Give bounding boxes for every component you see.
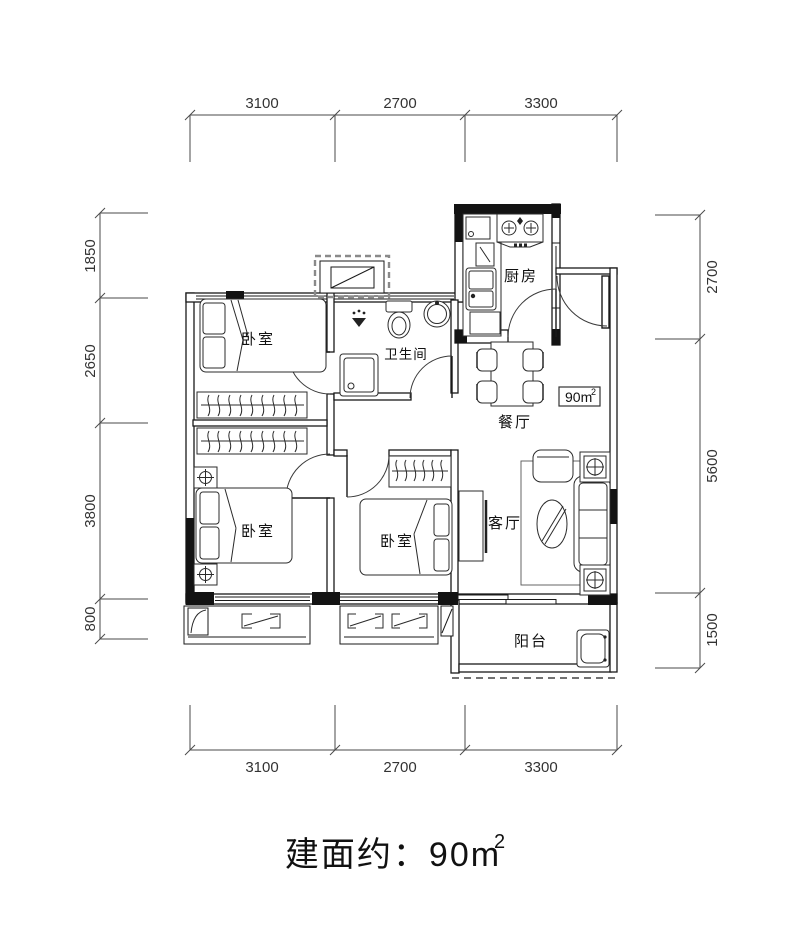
- shower: [340, 310, 378, 396]
- dining-chair: [523, 349, 543, 371]
- door-bedroom-3: [347, 455, 389, 497]
- dimension-chain-right: 2700 5600 1500: [655, 210, 721, 673]
- wall-bedroom3-top: [334, 450, 347, 456]
- room-label-balcony: 阳台: [514, 633, 548, 650]
- area-badge: 90m 2: [559, 387, 600, 406]
- wall-bedroom-divider: [193, 420, 327, 426]
- pillow: [434, 504, 449, 536]
- room-bedroom-2: 卧室: [194, 428, 307, 585]
- door-bathroom: [410, 356, 452, 398]
- shower-head-icon: [352, 318, 366, 327]
- room-living: 客厅: [459, 450, 610, 595]
- ac-platform-top: [315, 256, 389, 297]
- dim-left-4: 800: [82, 606, 99, 631]
- wardrobe: [197, 428, 307, 454]
- wall-balcony-right: [610, 603, 617, 672]
- dim-right-3: 1500: [704, 613, 721, 646]
- kitchen-sink: [466, 268, 496, 310]
- balcony-corner-sash: [441, 606, 453, 636]
- room-kitchen: 厨房: [463, 214, 543, 336]
- nightstand: [194, 467, 217, 488]
- wall-right: [610, 268, 617, 603]
- wall-solid-block: [610, 489, 617, 524]
- dim-top-1: 3100: [245, 95, 278, 112]
- wall-interior-vertical: [327, 394, 334, 455]
- armchair: [533, 450, 573, 482]
- wall-solid-block: [186, 518, 194, 604]
- dim-bottom-1: 3100: [245, 759, 278, 776]
- dining-chair: [477, 381, 497, 403]
- wall-solid-block: [552, 204, 560, 218]
- caption-sup: 2: [494, 831, 505, 853]
- pillow: [203, 337, 225, 368]
- coffee-table: [537, 500, 567, 548]
- floor-plan-drawing: 3100 2700 3300 3100 2700 3300 1850 2650 …: [0, 0, 800, 952]
- door-kitchen: [508, 289, 556, 337]
- dim-right-1: 2700: [704, 260, 721, 293]
- kitchen-cabinet: [470, 312, 500, 334]
- side-table: [580, 452, 610, 482]
- wall-interior-vertical: [327, 498, 334, 602]
- floor-plan-page: 3100 2700 3300 3100 2700 3300 1850 2650 …: [0, 0, 800, 952]
- room-label-bathroom: 卫生间: [384, 347, 428, 362]
- room-bedroom-1: 卧室: [197, 299, 326, 418]
- caption: 建面约：90m 2: [285, 831, 505, 874]
- caption-text: 建面约：90m: [285, 836, 501, 874]
- door-entry: [557, 276, 609, 328]
- room-label-living: 客厅: [488, 515, 522, 532]
- wall-solid-block: [454, 204, 561, 214]
- wall-entry-lintel: [556, 268, 617, 274]
- dimension-chain-bottom: 3100 2700 3300: [185, 705, 622, 776]
- room-label-dining: 餐厅: [498, 414, 532, 431]
- room-label-bedroom-1: 卧室: [241, 331, 275, 348]
- dim-top-3: 3300: [524, 95, 557, 112]
- dim-left-3: 3800: [82, 494, 99, 527]
- dim-top-2: 2700: [383, 95, 416, 112]
- dimension-chain-top: 3100 2700 3300: [185, 95, 622, 162]
- room-bathroom: 卫生间: [340, 301, 450, 396]
- wall-solid-block: [588, 594, 617, 605]
- dimension-chain-left: 1850 2650 3800 800: [82, 208, 148, 644]
- wardrobe: [197, 392, 307, 418]
- room-label-bedroom-3: 卧室: [380, 533, 414, 550]
- dining-chair: [477, 349, 497, 371]
- tv-cabinet: [459, 491, 486, 561]
- side-table: [580, 565, 610, 595]
- door-bedroom-2: [286, 454, 330, 498]
- wall-bedroom3-top: [389, 450, 451, 456]
- wall-solid-block: [455, 212, 463, 242]
- bathroom-sink: [424, 301, 450, 327]
- dim-bottom-2: 2700: [383, 759, 416, 776]
- sofa: [574, 476, 610, 572]
- dim-left-2: 2650: [82, 344, 99, 377]
- area-badge-value: 90m: [565, 389, 592, 405]
- dim-left-1: 1850: [82, 239, 99, 272]
- pillow: [200, 527, 219, 559]
- wall-solid-block: [438, 592, 458, 605]
- wardrobe: [389, 456, 451, 487]
- toilet: [386, 301, 412, 338]
- nightstand: [194, 564, 217, 585]
- dim-right-2: 5600: [704, 449, 721, 482]
- wall-interior-vertical: [327, 293, 334, 352]
- room-dining: 餐厅 90m 2: [477, 342, 600, 431]
- dim-bottom-3: 3300: [524, 759, 557, 776]
- kitchen-stove: [497, 214, 543, 247]
- room-label-kitchen: 厨房: [504, 268, 538, 285]
- wall-solid-block: [186, 592, 214, 605]
- dining-chair: [523, 381, 543, 403]
- pillow: [203, 303, 225, 334]
- washing-machine: [577, 630, 609, 667]
- room-label-bedroom-2: 卧室: [241, 523, 275, 540]
- pillow: [434, 539, 449, 571]
- wall-solid-block: [312, 592, 340, 605]
- room-bedroom-3: 卧室: [360, 456, 452, 575]
- pillow: [200, 492, 219, 524]
- area-badge-sup: 2: [591, 387, 596, 397]
